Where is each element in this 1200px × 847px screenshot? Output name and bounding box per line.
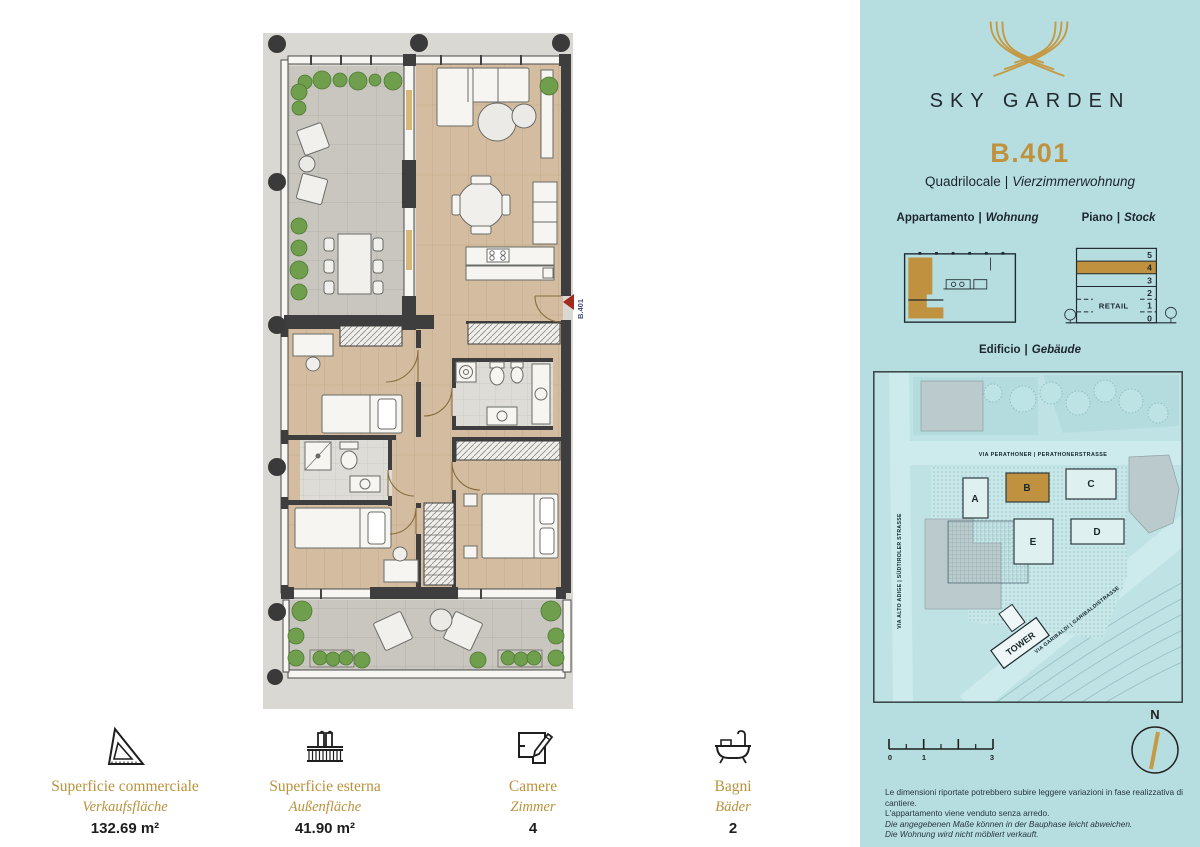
metric-label-it: Bagni (623, 778, 843, 796)
brochure-page: B.401 Superficie commerciale Verkaufsflä… (0, 0, 1200, 847)
label-appartamento: Appartamento (897, 212, 975, 224)
unit-number: B.401 (860, 138, 1200, 169)
metric-bagni: Bagni Bäder 2 (623, 722, 843, 837)
street-north-label: VIA PERATHONER | PERATHONERSTRASSE (979, 452, 1108, 458)
metric-label-it: Camere (423, 778, 643, 796)
sky-garden-logo-icon (970, 16, 1088, 80)
building-e-label: E (1030, 537, 1037, 548)
disclaimer-line-2: L'appartamento viene venduto senza arred… (885, 808, 1185, 819)
building-d-label: D (1093, 527, 1100, 538)
building-a-label: A (971, 494, 978, 505)
floor-1-label: 1 (1147, 301, 1152, 311)
building-b-label: B (1023, 483, 1030, 494)
metric-value: 132.69 m² (15, 820, 235, 837)
label-stock: Stock (1124, 212, 1155, 224)
metric-superficie-commerciale: Superficie commerciale Verkaufsfläche 13… (15, 722, 235, 837)
compass-icon: N (1125, 706, 1185, 778)
entrance-unit-label: B.401 (576, 299, 585, 319)
apartment-type: Quadrilocale|Vierzimmerwohnung (860, 174, 1200, 189)
metric-label-de: Bäder (623, 799, 843, 816)
site-map: TOWER A B C D E VIA PERATHONER | PERATHO… (873, 371, 1183, 703)
indoor-plant (540, 77, 558, 95)
label-edificio: Edificio (979, 344, 1021, 356)
separator: | (1021, 344, 1032, 356)
metric-label-it: Superficie esterna (215, 778, 435, 796)
separator: | (974, 212, 985, 224)
floor-stack-diagram: 5 4 3 2 1 0 RETAIL (1062, 238, 1180, 335)
balcony-icon (215, 722, 435, 772)
building-section-header: Edificio|Gebäude (860, 344, 1200, 356)
apartment-position-diagram (900, 244, 1020, 332)
label-wohnung: Wohnung (986, 212, 1039, 224)
metric-superficie-esterna: Superficie esterna Außenfläche 41.90 m² (215, 722, 435, 837)
floor-2-label: 2 (1147, 288, 1152, 298)
metric-label-de: Verkaufsfläche (15, 799, 235, 816)
building-c-label: C (1087, 479, 1094, 490)
floor-4-label: 4 (1147, 263, 1152, 273)
floor-5-label: 5 (1147, 250, 1152, 260)
bathtub-icon (623, 722, 843, 772)
disclaimer-line-4: Die Wohnung wird nicht möbliert verkauft… (885, 829, 1185, 840)
metric-label-it: Superficie commerciale (15, 778, 235, 796)
metric-value: 2 (623, 820, 843, 837)
apartment-section-header: Appartamento|Wohnung (860, 212, 1075, 224)
floor-section-header: Piano|Stock (1056, 212, 1181, 224)
room-plan-icon (423, 722, 643, 772)
set-square-icon (15, 722, 235, 772)
label-piano: Piano (1082, 212, 1113, 224)
floor-0-label: 0 (1147, 313, 1152, 323)
scale-1-label: 1 (922, 753, 926, 762)
disclaimer-text: Le dimensioni riportate potrebbero subir… (885, 787, 1185, 840)
metric-value: 4 (423, 820, 643, 837)
scale-bar: 0 1 3 (885, 733, 1000, 765)
project-title: SKY GARDEN (860, 90, 1200, 113)
scale-0-label: 0 (888, 753, 892, 762)
metric-camere: Camere Zimmer 4 (423, 722, 643, 837)
scale-3-label: 3 (990, 753, 994, 762)
metric-value: 41.90 m² (215, 820, 435, 837)
apartment-type-it: Quadrilocale (925, 174, 1001, 189)
floor-plan-area: B.401 Superficie commerciale Verkaufsflä… (0, 0, 860, 847)
apartment-type-de: Vierzimmerwohnung (1012, 174, 1135, 189)
compass-needle (1151, 732, 1158, 769)
floor-plan-drawing: B.401 (0, 0, 860, 847)
label-gebaeude: Gebäude (1032, 344, 1081, 356)
separator: | (1001, 174, 1013, 189)
retail-label: RETAIL (1099, 301, 1129, 310)
info-sidebar: SKY GARDEN B.401 Quadrilocale|Vierzimmer… (860, 0, 1200, 847)
metric-label-de: Zimmer (423, 799, 643, 816)
disclaimer-line-1: Le dimensioni riportate potrebbero subir… (885, 787, 1185, 808)
street-west-label: VIA ALTO ADIGE | SÜDTIROLER STRASSE (896, 513, 903, 629)
separator: | (1113, 212, 1124, 224)
compass-north-label: N (1150, 707, 1159, 722)
floor-3-label: 3 (1147, 275, 1152, 285)
metric-label-de: Außenfläche (215, 799, 435, 816)
highlighted-unit-shape (908, 258, 932, 310)
highlighted-floor-bar (1077, 261, 1157, 274)
disclaimer-line-3: Die angegebenen Maße können in der Bauph… (885, 819, 1185, 830)
